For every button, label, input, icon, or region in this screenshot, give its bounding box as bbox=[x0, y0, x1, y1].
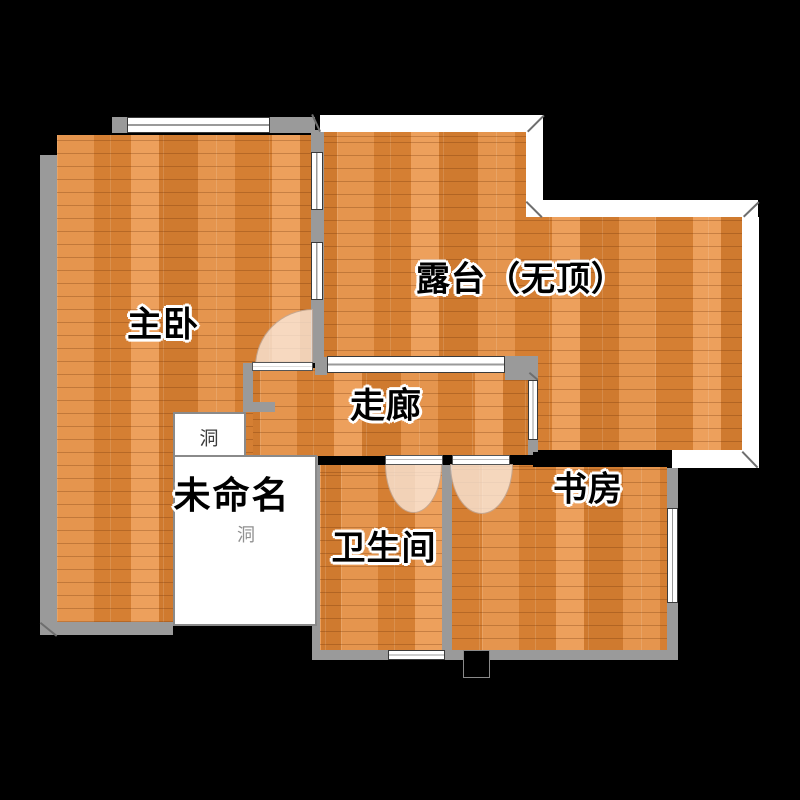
wall-bedroom-top-right bbox=[270, 117, 315, 133]
door-leaf-study bbox=[452, 455, 510, 465]
black-wall-study-top-left bbox=[510, 455, 533, 465]
window-bedroom-terrace-lower bbox=[311, 242, 323, 300]
label-terrace: 露台（无顶） bbox=[416, 252, 626, 301]
label-hole-upper: 洞 bbox=[199, 424, 218, 451]
terrace-railing-bottom bbox=[672, 450, 759, 468]
wall-corridor-window-cap-left bbox=[315, 357, 327, 375]
wall-bathroom-study bbox=[442, 465, 452, 660]
door-leaf-bathroom bbox=[385, 455, 443, 465]
window-bedroom-north bbox=[127, 117, 270, 133]
floor-plan-canvas: 主卧 露台（无顶） 走廊 卫生间 书房 未命名 洞 洞 bbox=[0, 0, 800, 800]
window-bathroom-south bbox=[388, 650, 445, 660]
terrace-railing-top bbox=[320, 115, 543, 132]
window-corridor-top bbox=[327, 356, 505, 373]
wall-bedroom-bottom bbox=[40, 622, 173, 635]
wall-bedroom-left bbox=[40, 155, 57, 635]
window-study-east bbox=[667, 508, 678, 603]
window-bedroom-terrace-upper bbox=[311, 152, 323, 210]
wall-corridor-left-horizontal bbox=[243, 402, 275, 412]
black-column bbox=[463, 650, 490, 678]
terrace-railing-right bbox=[742, 217, 759, 452]
label-master-bedroom: 主卧 bbox=[127, 297, 199, 348]
black-wall-bathroom-top bbox=[318, 456, 385, 465]
label-corridor: 走廊 bbox=[350, 378, 422, 429]
wall-bedroom-top-left bbox=[112, 117, 127, 133]
wall-bottom-south bbox=[312, 650, 678, 660]
label-bathroom: 卫生间 bbox=[332, 521, 437, 570]
label-study: 书房 bbox=[553, 462, 623, 511]
window-corridor-right bbox=[528, 380, 538, 440]
label-hole-lower: 洞 bbox=[237, 521, 255, 547]
door-leaf-master-bedroom bbox=[252, 362, 313, 371]
terrace-railing-step-horizontal bbox=[543, 200, 758, 217]
label-unnamed-room: 未命名 bbox=[174, 465, 291, 519]
